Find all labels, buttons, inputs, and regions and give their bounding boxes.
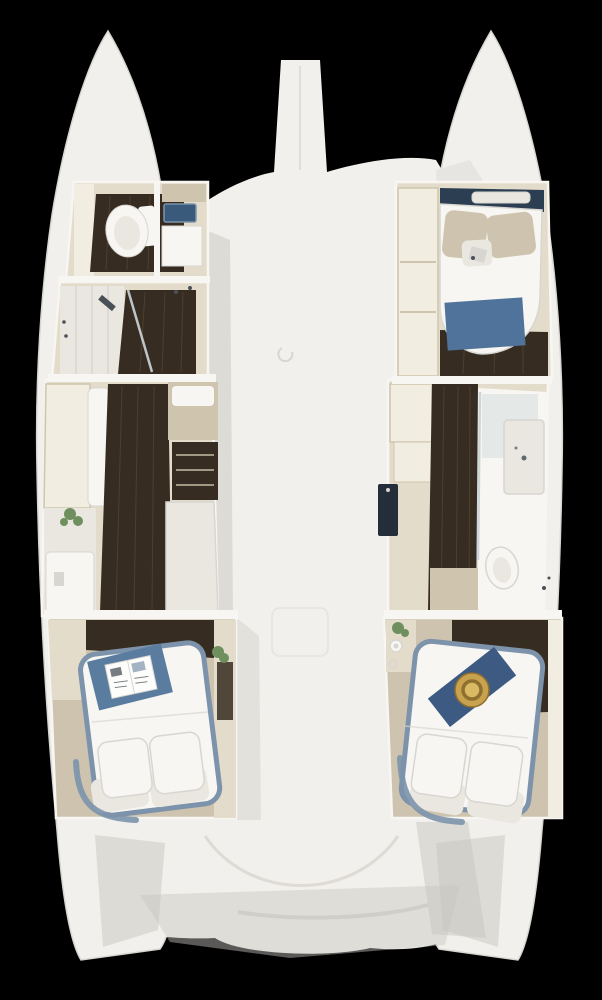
vanity-faucet [522, 456, 527, 461]
straw-hat-crown [463, 681, 481, 699]
bench-towel [54, 572, 64, 586]
plant-leaf-2 [73, 516, 83, 526]
door-handle-dot-2 [64, 334, 68, 338]
fwd-tray-cup [471, 256, 475, 260]
bench-cushion [172, 386, 214, 406]
port-pillow-right [149, 731, 206, 795]
shower-floor [118, 290, 196, 374]
bath-fixture-dot-1 [542, 586, 546, 590]
stbd-cabin-strip-right [548, 620, 562, 818]
shelf-bottle-cap [394, 644, 399, 649]
shower-fixture-dot-1 [174, 290, 178, 294]
deck-beam-fwd-bath [392, 376, 552, 384]
bathroom-step [430, 568, 478, 614]
corridor-bench-low [46, 552, 94, 612]
port-mid-corridor [42, 374, 218, 616]
bath-fixture-dot-2 [548, 577, 551, 580]
port-pillow-left [97, 737, 153, 799]
deck-beam-head-shower [58, 276, 210, 283]
deck-beam-bath-cabin [384, 610, 562, 619]
deck-beam-shower-corridor [48, 374, 216, 382]
floorplan-svg [0, 0, 602, 1000]
starboard-mid-bathroom [378, 376, 552, 616]
catamaran-floorplan-render [0, 0, 602, 1000]
head-divider-wall [154, 182, 160, 280]
mid-cabinet-upper [390, 384, 432, 442]
port-bow-head [66, 182, 208, 280]
starboard-aft-cabin [384, 610, 562, 825]
port-swim-step-shadow [95, 835, 165, 947]
deck-beam-corridor-cabin [44, 610, 238, 619]
starboard-forward-cabin [396, 182, 552, 378]
port-shower-room [52, 276, 210, 378]
corridor-desk [166, 502, 218, 612]
head-top-shelf [162, 184, 206, 202]
fwd-pillow-right [486, 211, 537, 258]
vanity-drain [515, 447, 518, 450]
door-handle-dot-1 [62, 320, 66, 324]
sink-basin [164, 204, 196, 222]
stbd-pillow-left [410, 733, 468, 799]
plant-leaf-2 [401, 629, 409, 637]
corridor-cabinet-left [44, 384, 90, 508]
stbd-pillow-right [464, 741, 524, 808]
fwd-cabin-wardrobe [398, 188, 438, 376]
shower-fixture-dot-2 [188, 286, 192, 290]
locker-knob [386, 488, 390, 492]
mid-cabinet-lower [394, 442, 432, 482]
fwd-blue-blanket [444, 297, 525, 350]
starboard-swim-step-shadow [436, 835, 505, 947]
sink-vanity-cabinet [162, 226, 202, 266]
deck-shadow-port-aft [237, 618, 261, 820]
plant-leaf-3 [60, 518, 68, 526]
plant-leaf-2 [219, 653, 229, 663]
port-cabin-mirror [217, 662, 233, 720]
headboard-vent [472, 192, 530, 203]
port-aft-cabin [44, 610, 238, 820]
